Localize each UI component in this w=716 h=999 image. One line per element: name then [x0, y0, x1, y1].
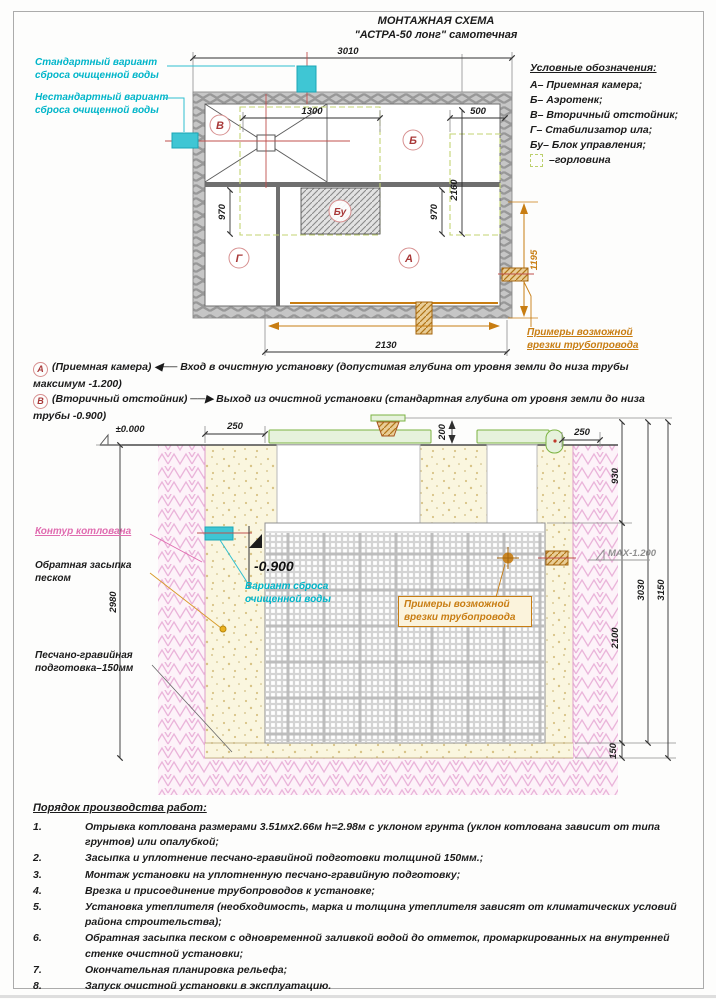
legend-item-g: Г– Стабилизатор ила;: [530, 123, 704, 138]
item-number: 3.: [33, 868, 85, 883]
note-inlet-text: (Приемная камера) ◀── Вход в очистную ус…: [33, 361, 629, 390]
procedure-item: 7.Окончательная планировка рельефа;: [33, 963, 693, 978]
item-text: Обратная засыпка песком с одновременной …: [85, 931, 693, 961]
neck-symbol-icon: [530, 154, 543, 167]
legend-item-a: А– Приемная камера;: [530, 78, 704, 93]
label-plan-pipe-cuts: Примеры возможной врезки трубопровода: [527, 327, 667, 352]
note-inlet: А(Приемная камера) ◀── Вход в очистную у…: [33, 360, 681, 393]
note-outlet-text: (Вторичный отстойник) ──▶ Выход из очист…: [33, 393, 645, 422]
item-number: 7.: [33, 963, 85, 978]
procedure-item: 1.Отрывка котлована размерами 3.51мх2.66…: [33, 820, 693, 850]
item-text: Монтаж установки на уплотненную песчано-…: [85, 868, 693, 883]
procedure-item: 4.Врезка и присоединение трубопроводов к…: [33, 884, 693, 899]
item-number: 8.: [33, 979, 85, 994]
label-standard-discharge: Стандартный вариант сброса очищенной вод…: [35, 57, 169, 82]
legend-item-v: В– Вторичный отстойник;: [530, 108, 704, 123]
item-text: Окончательная планировка рельефа;: [85, 963, 693, 978]
drawing-sheet: МОНТАЖНАЯ СХЕМА "АСТРА-50 лонг" самотечн…: [0, 0, 716, 999]
item-number: 4.: [33, 884, 85, 899]
label-gravel-bed: Песчано-гравийная подготовка–150мм: [35, 650, 180, 675]
item-number: 2.: [33, 851, 85, 866]
item-number: 6.: [33, 931, 85, 961]
item-text: Врезка и присоединение трубопроводов к у…: [85, 884, 693, 899]
item-number: 1.: [33, 820, 85, 850]
label-nonstandard-discharge: Нестандартный вариант сброса очищенной в…: [35, 92, 169, 117]
legend: Условные обозначения: А– Приемная камера…: [530, 61, 704, 168]
label-pit-contour: Контур котлована: [35, 526, 170, 539]
drawing-title: МОНТАЖНАЯ СХЕМА "АСТРА-50 лонг" самотечн…: [280, 14, 592, 43]
procedure-item: 5.Установка утеплителя (необходимость, м…: [33, 900, 693, 930]
title-line-2: "АСТРА-50 лонг" самотечная: [280, 28, 592, 42]
item-text: Отрывка котлована размерами 3.51мх2.66м …: [85, 820, 693, 850]
procedure-item: 6.Обратная засыпка песком с одновременно…: [33, 931, 693, 961]
item-number: 5.: [33, 900, 85, 930]
item-text: Засыпка и уплотнение песчано-гравийной п…: [85, 851, 693, 866]
label-backfill: Обратная засыпка песком: [35, 560, 155, 585]
procedure-item: 2.Засыпка и уплотнение песчано-гравийной…: [33, 851, 693, 866]
item-text: Установка утеплителя (необходимость, мар…: [85, 900, 693, 930]
title-line-1: МОНТАЖНАЯ СХЕМА: [280, 14, 592, 28]
note-outlet-marker: В: [33, 394, 48, 409]
legend-neck-label: –горловина: [549, 153, 611, 168]
procedure-title: Порядок производства работ:: [33, 801, 693, 817]
label-discharge-variant: Вариант сброса очищенной воды: [245, 581, 347, 606]
procedure: Порядок производства работ: 1.Отрывка ко…: [33, 801, 693, 995]
legend-title: Условные обозначения:: [530, 61, 704, 76]
note-inlet-marker: А: [33, 362, 48, 377]
procedure-item: 3.Монтаж установки на уплотненную песчан…: [33, 868, 693, 883]
procedure-list: 1.Отрывка котлована размерами 3.51мх2.66…: [33, 820, 693, 994]
sheet-bottom-edge: [0, 995, 716, 998]
legend-item-bu: Бу– Блок управления;: [530, 138, 704, 153]
legend-item-neck: –горловина: [530, 153, 704, 168]
label-section-pipe-cuts: Примеры возможной врезки трубопровода: [398, 596, 532, 627]
item-text: Запуск очистной установки в эксплуатацию…: [85, 979, 693, 994]
note-outlet: В(Вторичный отстойник) ──▶ Выход из очис…: [33, 392, 681, 425]
procedure-item: 8.Запуск очистной установки в эксплуатац…: [33, 979, 693, 994]
legend-item-b: Б– Аэротенк;: [530, 93, 704, 108]
